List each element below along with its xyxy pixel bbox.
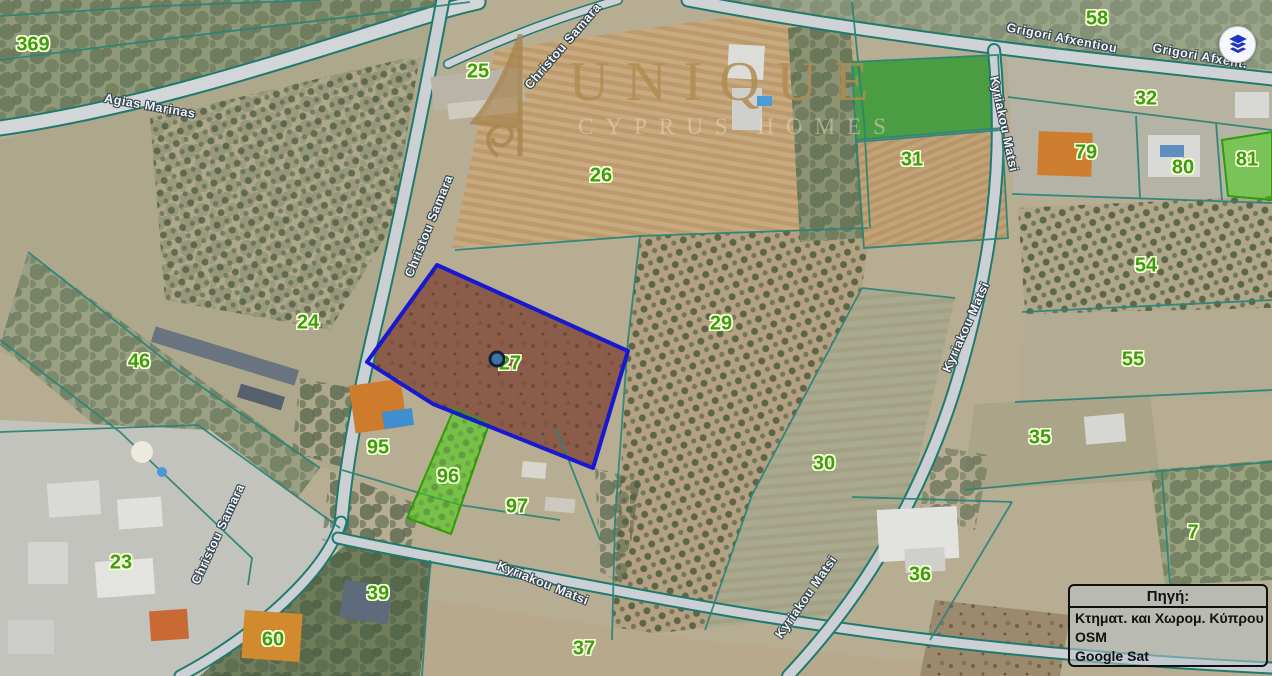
legend-source-cadastre: Κτηματ. και Χωρομ. Κύπρου — [1070, 608, 1266, 627]
legend-source-googlesat: Google Sat — [1070, 646, 1266, 665]
layers-icon — [1225, 32, 1251, 58]
satellite-terrain — [0, 0, 1272, 676]
source-legend: Πηγή: Κτηματ. και Χωρομ. Κύπρου OSM Goog… — [1068, 584, 1268, 667]
selected-parcel-marker[interactable] — [489, 351, 506, 368]
legend-title: Πηγή: — [1070, 586, 1266, 608]
layers-button[interactable] — [1219, 26, 1256, 63]
map-canvas[interactable]: 3692526583279808131542446295527359596973… — [0, 0, 1272, 676]
legend-source-osm: OSM — [1070, 627, 1266, 646]
highlight-parcel-81[interactable] — [1222, 132, 1272, 200]
